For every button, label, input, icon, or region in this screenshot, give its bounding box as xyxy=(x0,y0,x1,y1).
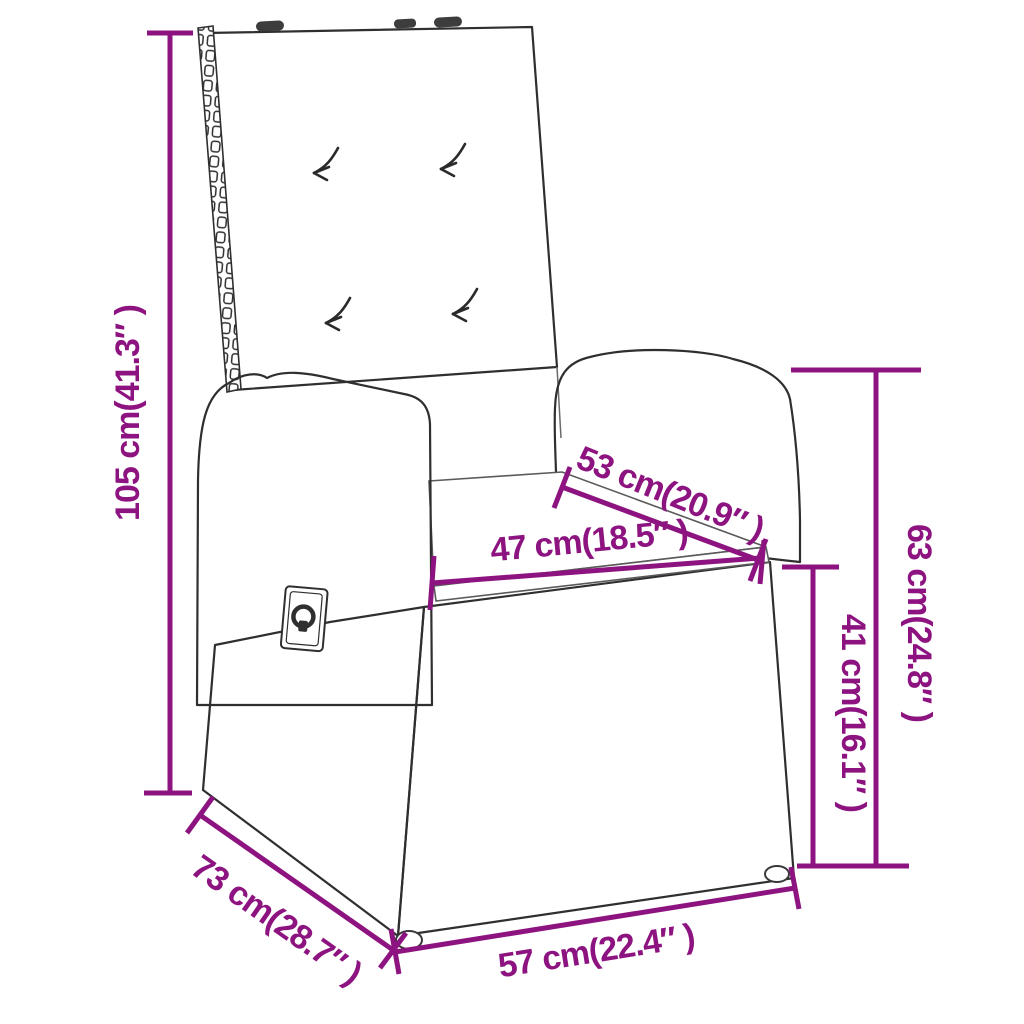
total-width-label: 57 cm(22.4″ ) xyxy=(496,917,697,986)
backrest-cushion xyxy=(206,27,557,390)
armrest-height-label: 63 cm(24.8″ ) xyxy=(900,524,938,722)
dimension-diagram-page: 105 cm(41.3″ ) 63 cm(24.8″ ) 41 cm(16.1″… xyxy=(0,0,1024,1024)
cushion-tie-icon xyxy=(256,20,284,31)
total-height-dimension-line xyxy=(144,33,193,793)
latch-hook-icon xyxy=(298,620,308,632)
cushion-tie-icon xyxy=(434,16,462,27)
total-height-label: 105 cm(41.3″ ) xyxy=(109,305,147,521)
base-front-panel xyxy=(398,562,794,936)
seat-height-label: 41 cm(16.1″ ) xyxy=(834,614,872,812)
chair-dimension-diagram: 105 cm(41.3″ ) 63 cm(24.8″ ) 41 cm(16.1″… xyxy=(0,0,1024,1024)
left-armrest xyxy=(197,373,432,705)
cushion-tie-icon xyxy=(394,18,416,28)
recline-latch xyxy=(281,586,328,651)
chair-foot-front-right xyxy=(765,866,789,882)
chair-illustration xyxy=(197,16,800,949)
